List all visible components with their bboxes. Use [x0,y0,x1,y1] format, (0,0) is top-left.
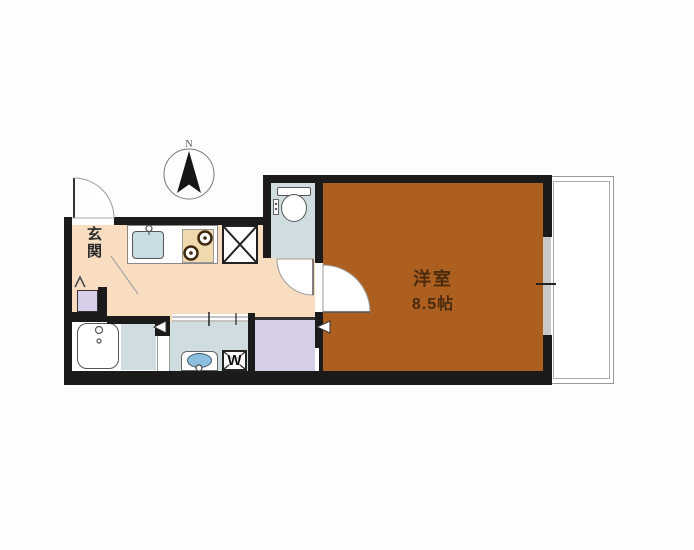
genkan-label: 玄関 [83,226,104,286]
hall-floor [263,258,315,322]
closet-door-line [315,348,319,371]
wall-bath-divider [155,316,170,336]
wall-genkan-bottom [72,312,107,322]
gas-stove [182,229,214,263]
refrigerator-space [222,225,258,264]
wall-left [64,217,72,385]
wall-genkan-stub [98,287,107,312]
entry-door-arc [74,178,114,218]
wall-bathroom-top [107,316,158,324]
bathtub [77,323,119,369]
wall-bottom [64,371,552,385]
room-size-label: 8.5帖 [363,290,503,314]
closet-top-partition [255,317,315,320]
wall-washroom-closet [248,313,255,371]
wall-top [263,175,552,183]
floor-plan: N 玄関 洋室 8.5帖 W [0,0,694,550]
toilet-bowl [281,194,307,222]
shoe-cabinet [77,290,98,312]
room-door-opening [315,263,323,312]
bath-door [157,336,170,371]
closet-floor [255,320,315,371]
wall-room-left-upper [315,183,323,263]
north-label: N [181,139,197,150]
bathroom-floor-panel [121,323,156,370]
wall-right-upper [543,175,552,237]
washbasin-bowl [187,353,212,368]
compass-circle [164,149,214,199]
balcony-inner-line [553,181,610,379]
north-arrow-icon [177,151,201,193]
kitchen-sink [132,231,164,259]
wall-corner-topleft [64,217,72,225]
room-name-label: 洋室 [363,265,503,291]
toilet-control-panel [273,199,279,215]
wall-toilet-left [263,175,271,258]
window [543,237,551,335]
wall-kitchen-top [114,217,271,225]
washer-label: W [222,352,247,369]
